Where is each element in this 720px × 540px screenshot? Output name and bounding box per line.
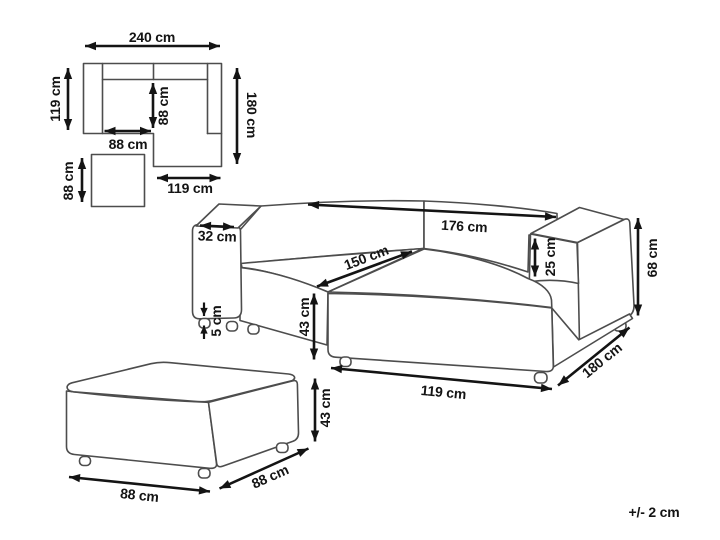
dim-label-armrest-width: 32 cm [198,227,237,244]
sofa-leg [340,357,351,367]
dim-label-back-width: 176 cm [441,217,488,235]
dim-label-topview-left-depth: 119 cm [47,76,63,122]
dim-label-topview-seat-depth: 88 cm [155,87,171,126]
ottoman-leg [277,443,289,453]
dim-label-topview-seat-width: 88 cm [109,136,148,152]
dim-label-topview-ottoman-size: 88 cm [60,162,76,201]
dim-label-ottoman-height: 43 cm [317,389,333,428]
ottoman-leg [199,469,211,479]
dim-label-topview-chaise-width: 119 cm [167,180,213,196]
dim-label-total-height: 68 cm [644,239,660,278]
furniture-dimension-diagram: 240 cm 119 cm 180 cm 88 cm 88 cm 119 cm … [0,0,720,540]
sofa-leg [227,322,238,332]
dim-label-chaise-front-width: 119 cm [420,382,467,402]
sofa-chaise-front-face [328,294,553,372]
sofa-leg [535,373,548,384]
ottoman-leg [80,457,91,466]
top-view-ottoman-square [92,155,145,207]
dim-label-topview-right-depth: 180 cm [244,92,260,138]
dim-label-seat-height: 43 cm [296,298,312,337]
dim-label-leg-height: 5 cm [208,305,224,336]
dim-label-armrest-above-seat: 25 cm [542,238,558,277]
dim-label-topview-total-width: 240 cm [129,29,175,45]
sofa-leg [248,325,259,335]
ottoman-3d-group: 88 cm 88 cm 43 cm [67,362,334,505]
dimension-diagram-canvas: 240 cm 119 cm 180 cm 88 cm 88 cm 119 cm … [0,0,720,540]
dim-label-ottoman-width: 88 cm [119,485,159,505]
top-view-group: 240 cm 119 cm 180 cm 88 cm 88 cm 119 cm … [47,29,260,207]
tolerance-note: +/- 2 cm [629,504,680,520]
